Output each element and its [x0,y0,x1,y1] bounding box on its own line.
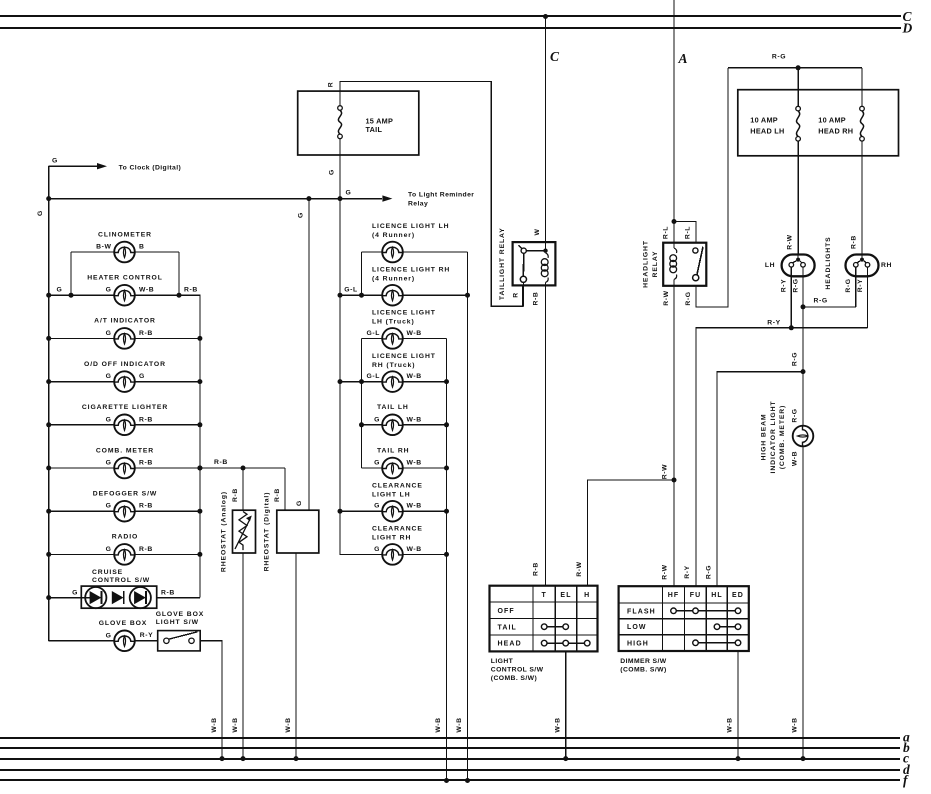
svg-text:CRUISE: CRUISE [92,569,123,576]
svg-text:R-Y: R-Y [781,279,788,293]
svg-text:CIGARETTE LIGHTER: CIGARETTE LIGHTER [82,404,168,411]
svg-text:W-B: W-B [232,717,239,732]
svg-text:W: W [534,228,541,235]
svg-text:G: G [298,212,305,218]
svg-text:R-B: R-B [139,460,153,467]
svg-text:R-B: R-B [139,503,153,510]
svg-text:R-G: R-G [814,297,828,304]
svg-text:R: R [328,82,335,88]
svg-text:HEAD LH: HEAD LH [750,127,784,136]
svg-text:LICENCE LIGHT RH: LICENCE LIGHT RH [372,266,450,273]
svg-text:W-B: W-B [407,546,422,553]
svg-text:LICENCE LIGHT: LICENCE LIGHT [372,353,436,360]
svg-text:H: H [584,592,590,599]
svg-text:A: A [678,51,688,66]
svg-text:T: T [542,592,547,599]
svg-text:LIGHT LH: LIGHT LH [372,491,411,498]
svg-text:W-B: W-B [139,287,154,294]
svg-text:HEADLIGHTS: HEADLIGHTS [825,236,832,289]
svg-text:R-W: R-W [576,561,583,576]
svg-text:O/D OFF INDICATOR: O/D OFF INDICATOR [84,361,166,368]
svg-text:G: G [72,589,78,596]
svg-text:G: G [106,330,112,337]
svg-text:15 AMP: 15 AMP [366,116,394,125]
svg-text:G: G [296,500,303,506]
svg-text:G: G [37,210,44,216]
svg-text:To Clock (Digital): To Clock (Digital) [119,164,182,171]
svg-text:R-L: R-L [684,226,691,239]
svg-text:G: G [374,546,380,553]
svg-text:G: G [374,460,380,467]
svg-text:RHEOSTAT (Analog): RHEOSTAT (Analog) [221,491,228,572]
svg-text:DEFOGGER S/W: DEFOGGER S/W [93,491,157,498]
svg-text:LH: LH [765,262,775,269]
svg-text:TAIL RH: TAIL RH [377,447,409,454]
svg-text:W-B: W-B [407,503,422,510]
svg-text:R-G: R-G [685,291,692,305]
svg-text:R-B: R-B [139,416,153,423]
svg-text:A/T INDICATOR: A/T INDICATOR [94,318,156,325]
svg-text:LIGHT: LIGHT [491,658,514,665]
svg-text:R-W: R-W [786,234,793,249]
svg-text:CONTROL S/W: CONTROL S/W [92,577,150,584]
svg-text:R-W: R-W [662,464,669,479]
svg-text:G: G [52,158,58,165]
svg-text:INDICATOR LIGHT: INDICATOR LIGHT [770,401,777,474]
svg-text:R-Y: R-Y [767,319,781,326]
svg-text:G: G [106,632,112,639]
svg-text:LIGHT S/W: LIGHT S/W [156,619,199,626]
svg-text:(4 Runner): (4 Runner) [372,232,415,239]
svg-text:(4 Runner): (4 Runner) [372,275,415,282]
svg-text:R-L: R-L [663,226,670,239]
svg-text:G: G [106,287,112,294]
svg-text:G: G [374,503,380,510]
svg-text:HF: HF [668,592,680,599]
svg-text:R-G: R-G [845,278,852,292]
svg-text:W-B: W-B [407,460,422,467]
svg-text:EL: EL [560,592,571,599]
svg-text:HEADLIGHT: HEADLIGHT [643,240,650,288]
svg-text:W-B: W-B [727,717,734,732]
svg-text:C: C [550,49,560,64]
svg-text:W-B: W-B [211,717,218,732]
svg-text:GLOVE BOX: GLOVE BOX [156,611,205,618]
svg-text:D: D [902,21,913,36]
svg-text:R-B: R-B [232,488,239,502]
svg-text:LH (Truck): LH (Truck) [372,319,415,326]
svg-text:R-B: R-B [184,286,198,293]
svg-text:To Light Reminder: To Light Reminder [408,191,474,198]
svg-text:COMB. METER: COMB. METER [96,447,154,454]
svg-text:G: G [374,416,380,423]
svg-text:10 AMP: 10 AMP [750,116,778,125]
svg-text:RH: RH [881,262,892,269]
svg-text:R: R [513,292,520,298]
svg-text:FU: FU [690,592,702,599]
svg-text:TAILLIGHT RELAY: TAILLIGHT RELAY [499,227,506,300]
svg-text:R-B: R-B [533,562,540,576]
svg-text:R-Y: R-Y [140,632,154,639]
svg-text:W-B: W-B [407,330,422,337]
svg-text:R-G: R-G [706,565,713,579]
svg-text:R-B: R-B [139,546,153,553]
svg-text:TAIL: TAIL [366,125,383,134]
svg-text:ED: ED [732,592,744,599]
svg-text:LIGHT RH: LIGHT RH [372,535,411,542]
svg-text:G: G [106,546,112,553]
svg-text:LICENCE LIGHT LH: LICENCE LIGHT LH [372,223,449,230]
svg-text:R-Y: R-Y [684,565,691,579]
svg-text:G-L: G-L [366,330,380,337]
svg-text:CLEARANCE: CLEARANCE [372,526,423,533]
svg-text:R-B: R-B [850,235,857,249]
svg-text:TAIL: TAIL [498,624,517,631]
svg-text:R-Y: R-Y [857,279,864,293]
svg-text:G: G [106,460,112,467]
svg-text:Relay: Relay [408,201,428,208]
svg-text:HIGH BEAM: HIGH BEAM [761,414,768,461]
svg-text:OFF: OFF [498,608,515,615]
svg-text:R-G: R-G [792,352,799,366]
svg-text:HEAD: HEAD [498,641,522,648]
svg-text:(COMB. S/W): (COMB. S/W) [491,675,537,682]
svg-text:DIMMER S/W: DIMMER S/W [620,658,666,665]
svg-text:R-G: R-G [772,54,786,61]
svg-text:G-L: G-L [344,286,358,293]
svg-text:W-B: W-B [456,717,463,732]
svg-text:W-B: W-B [435,717,442,732]
svg-text:G: G [346,190,352,197]
svg-text:B: B [139,244,145,251]
svg-text:R-G: R-G [792,408,799,422]
svg-text:LICENCE LIGHT: LICENCE LIGHT [372,310,436,317]
svg-text:HEATER CONTROL: HEATER CONTROL [87,275,163,282]
svg-text:G: G [329,169,336,175]
svg-text:10 AMP: 10 AMP [818,116,846,125]
svg-text:W-B: W-B [285,717,292,732]
svg-text:R-B: R-B [533,292,540,306]
svg-text:(COMB. METER): (COMB. METER) [779,405,786,470]
svg-text:HIGH: HIGH [627,640,649,647]
svg-text:R-W: R-W [662,564,669,579]
svg-text:G: G [139,373,145,380]
svg-text:RELAY: RELAY [652,251,659,278]
svg-text:RADIO: RADIO [112,534,138,541]
svg-text:R-B: R-B [274,488,281,502]
svg-text:RH (Truck): RH (Truck) [372,362,415,369]
svg-text:G: G [106,503,112,510]
svg-text:GLOVE BOX: GLOVE BOX [99,620,148,627]
svg-text:B-W: B-W [96,244,111,251]
svg-text:CLEARANCE: CLEARANCE [372,482,423,489]
svg-text:LOW: LOW [627,624,647,631]
svg-text:G-L: G-L [366,373,380,380]
svg-text:TAIL LH: TAIL LH [377,404,409,411]
svg-text:W-B: W-B [407,373,422,380]
svg-text:W-B: W-B [792,717,799,732]
svg-text:R-B: R-B [214,459,228,466]
svg-text:R-W: R-W [663,290,670,305]
svg-text:FLASH: FLASH [627,608,656,615]
svg-text:(COMB. S/W): (COMB. S/W) [620,667,666,674]
svg-text:HEAD RH: HEAD RH [818,127,853,136]
svg-text:HL: HL [711,592,723,599]
svg-text:G: G [106,373,112,380]
svg-text:R-B: R-B [139,330,153,337]
svg-text:W-B: W-B [792,451,799,466]
svg-text:G: G [57,286,63,293]
svg-text:R-G: R-G [793,278,800,292]
svg-text:G: G [106,416,112,423]
svg-text:R-B: R-B [161,589,175,596]
svg-text:W-B: W-B [407,416,422,423]
svg-text:RHEOSTAT (Digital): RHEOSTAT (Digital) [264,492,271,572]
svg-text:CLINOMETER: CLINOMETER [98,231,152,238]
svg-text:W-B: W-B [555,717,562,732]
svg-text:CONTROL S/W: CONTROL S/W [491,667,544,674]
